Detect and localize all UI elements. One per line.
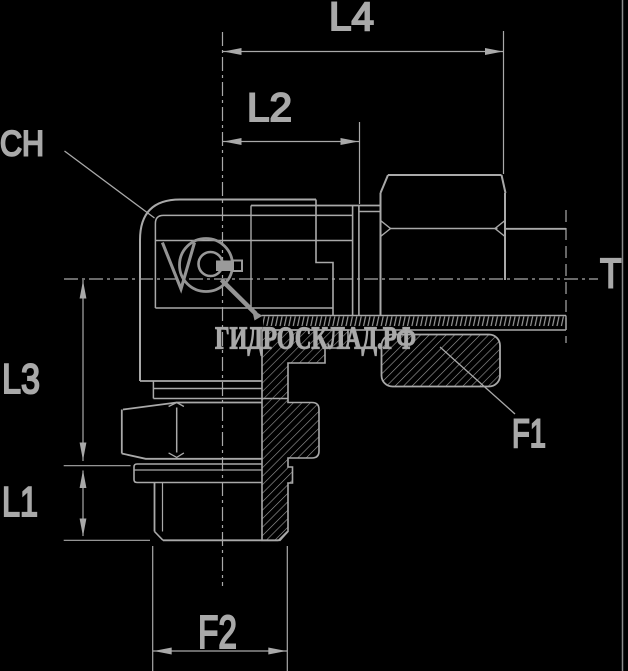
svg-text:L2: L2 xyxy=(247,86,292,130)
svg-text:ГИДРОСКЛАД.РФ: ГИДРОСКЛАД.РФ xyxy=(215,320,416,356)
svg-text:F2: F2 xyxy=(198,606,237,658)
svg-text:L3: L3 xyxy=(2,355,40,402)
svg-text:F1: F1 xyxy=(512,412,546,456)
svg-text:CH: CH xyxy=(0,125,44,164)
svg-text:L4: L4 xyxy=(329,0,374,39)
svg-text:L1: L1 xyxy=(2,478,38,525)
svg-text:T: T xyxy=(600,250,622,297)
